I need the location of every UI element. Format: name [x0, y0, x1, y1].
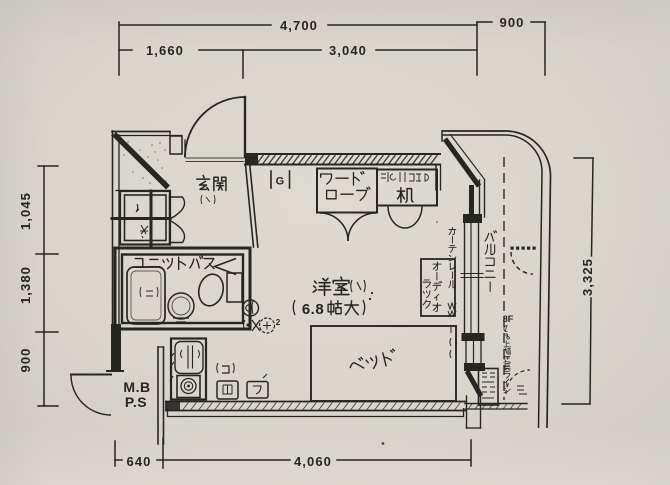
- svg-text:900: 900: [18, 348, 33, 373]
- svg-text:2: 2: [276, 318, 281, 327]
- svg-text:640: 640: [127, 454, 152, 469]
- svg-text:1,660: 1,660: [146, 43, 184, 58]
- svg-text:4,060: 4,060: [294, 454, 332, 469]
- svg-text:3,325: 3,325: [580, 258, 595, 296]
- svg-text:P.S: P.S: [125, 394, 147, 410]
- svg-text:G: G: [276, 176, 286, 188]
- svg-text:1,045: 1,045: [18, 192, 33, 230]
- svg-text:900: 900: [500, 15, 525, 30]
- svg-text:8F: 8F: [503, 314, 514, 324]
- svg-text:1,380: 1,380: [18, 266, 33, 304]
- svg-text:4,700: 4,700: [280, 18, 318, 33]
- svg-text:3,040: 3,040: [329, 43, 367, 58]
- svg-text:M.B: M.B: [123, 379, 150, 395]
- svg-text:6.8: 6.8: [302, 301, 324, 318]
